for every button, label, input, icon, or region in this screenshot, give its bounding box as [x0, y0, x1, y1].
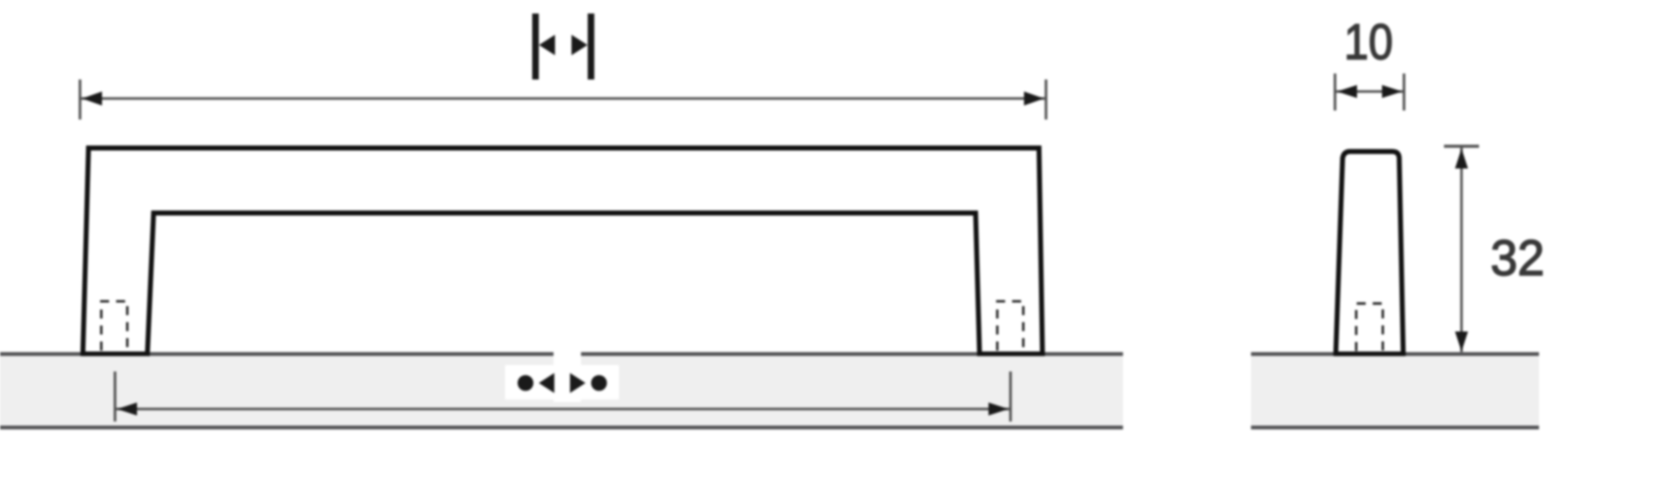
svg-text:10: 10	[1344, 13, 1393, 70]
svg-text:32: 32	[1491, 229, 1545, 286]
